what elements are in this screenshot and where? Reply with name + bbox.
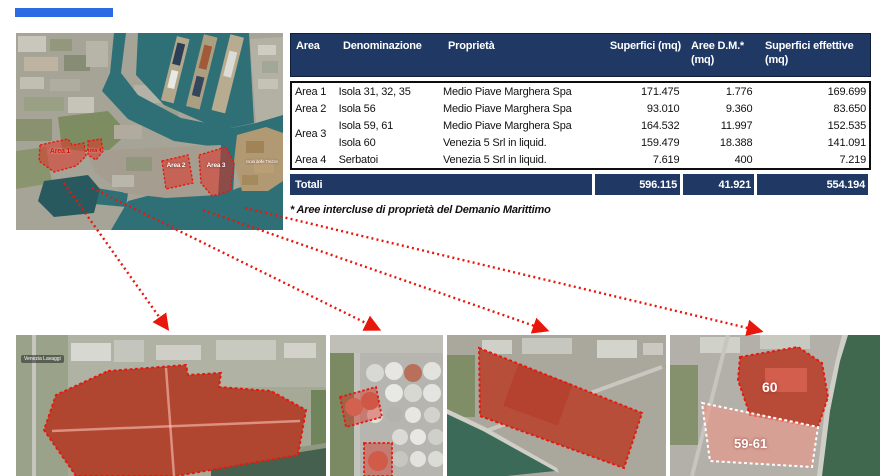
cell-aree-dm: 18.388 — [682, 134, 755, 151]
cell-aree-dm: 1.776 — [682, 83, 755, 100]
column-header-area: Area — [291, 34, 338, 76]
detail4-art — [670, 335, 880, 476]
cell-superfici: 7.619 — [595, 151, 682, 168]
column-header-proprieta: Proprietà — [443, 34, 596, 76]
table-header-row: Area Denominazione Proprietà Superfici (… — [290, 33, 871, 77]
map-area1-label: Area 1 — [42, 148, 78, 155]
detail-image-serbatoi — [330, 335, 443, 476]
column-header-superfici-effettive: Superfici effettive(mq) — [758, 34, 872, 76]
map-place-label: Venezia Lavaggi — [21, 355, 64, 363]
table-row: Area 2 Isola 56 Medio Piave Marghera Spa… — [292, 100, 869, 117]
cell-proprieta: Medio Piave Marghera Spa — [440, 100, 595, 117]
detail-image-isola-56 — [447, 335, 666, 476]
detail-image-isole-31-32-35: Venezia Lavaggi — [16, 335, 326, 476]
cell-denominazione: Isola 31, 32, 35 — [336, 83, 440, 100]
table-footnote: * Aree intercluse di proprietà del Deman… — [290, 204, 871, 216]
cell-proprieta: Medio Piave Marghera Spa — [440, 83, 595, 100]
areas-table: Area Denominazione Proprietà Superfici (… — [290, 33, 871, 216]
cell-superfici-effettive: 169.699 — [755, 83, 869, 100]
cell-superfici: 93.010 — [595, 100, 682, 117]
cell-superfici: 164.532 — [595, 117, 682, 134]
cell-aree-dm: 400 — [682, 151, 755, 168]
cell-aree-dm: 11.997 — [682, 117, 755, 134]
cell-area: Area 1 — [292, 83, 336, 100]
cell-area: Area 4 — [292, 151, 336, 168]
table-totals-row: Totali 596.115 41.921 554.194 — [290, 174, 871, 195]
detail2-art — [330, 335, 443, 476]
map-overview-art — [16, 33, 283, 230]
accent-bar — [15, 8, 113, 17]
cell-proprieta: Medio Piave Marghera Spa — [440, 117, 595, 134]
column-header-denominazione: Denominazione — [338, 34, 443, 76]
cell-proprieta: Venezia 5 Srl in liquid. — [440, 151, 595, 168]
totals-aree-dm: 41.921 — [683, 174, 754, 195]
map-area4-label: Area 4 — [85, 149, 102, 155]
cell-denominazione: Isola 60 — [336, 134, 440, 151]
cell-superfici: 159.479 — [595, 134, 682, 151]
column-header-aree-dm: Aree D.M.*(mq) — [684, 34, 758, 76]
map-area2-label: Area 2 — [163, 163, 189, 170]
zone-60-label: 60 — [762, 379, 778, 395]
column-header-superfici: Superfici (mq) — [596, 34, 684, 76]
cell-superfici-effettive: 83.650 — [755, 100, 869, 117]
cell-superfici-effettive: 141.091 — [755, 134, 869, 151]
totals-label: Totali — [290, 174, 592, 195]
table-row: Area 4 Serbatoi Venezia 5 Srl in liquid.… — [292, 151, 869, 168]
cell-superfici-effettive: 7.219 — [755, 151, 869, 168]
cell-area: Area 3 — [292, 117, 336, 151]
cell-superfici: 171.475 — [595, 83, 682, 100]
totals-superfici: 596.115 — [595, 174, 680, 195]
detail-image-isole-59-60-61: 60 59-61 — [670, 335, 880, 476]
table-row: Isola 60 Venezia 5 Srl in liquid. 159.47… — [292, 134, 869, 151]
cell-superfici-effettive: 152.535 — [755, 117, 869, 134]
slide-page: Area 1 Area 4 Area 2 Area 3 Isola delle … — [0, 0, 880, 476]
cell-proprieta: Venezia 5 Srl in liquid. — [440, 134, 595, 151]
cell-aree-dm: 9.360 — [682, 100, 755, 117]
cell-denominazione: Isola 59, 61 — [336, 117, 440, 134]
table-body: Area 1 Isola 31, 32, 35 Medio Piave Marg… — [290, 81, 871, 170]
cell-denominazione: Serbatoi — [336, 151, 440, 168]
table-row: Area 1 Isola 31, 32, 35 Medio Piave Marg… — [292, 83, 869, 100]
cell-area: Area 2 — [292, 100, 336, 117]
zone-59-61-label: 59-61 — [734, 436, 767, 451]
table-row: Area 3 Isola 59, 61 Medio Piave Marghera… — [292, 117, 869, 134]
cell-denominazione: Isola 56 — [336, 100, 440, 117]
map-overview-image: Area 1 Area 4 Area 2 Area 3 Isola delle … — [16, 33, 283, 230]
map-island-label: Isola delle Trezze — [244, 160, 280, 165]
map-area3-label: Area 3 — [203, 163, 229, 170]
detail3-art — [447, 335, 666, 476]
totals-superfici-effettive: 554.194 — [757, 174, 868, 195]
